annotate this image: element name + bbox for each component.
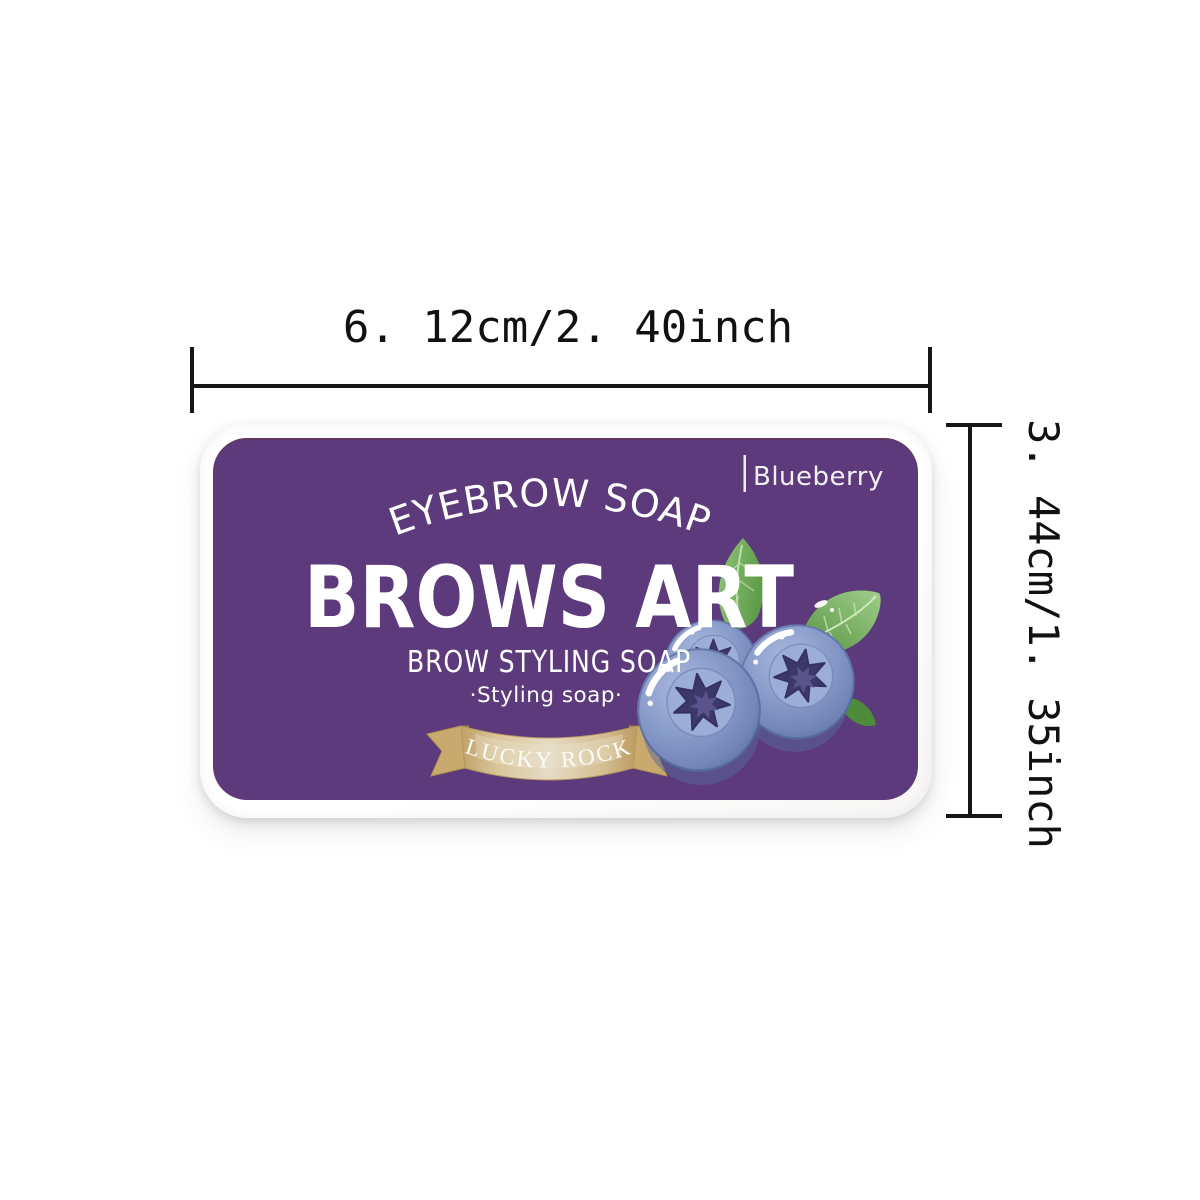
flavor-divider-bar	[744, 455, 747, 492]
height-dimension-tick-bottom	[946, 814, 1002, 818]
width-dimension-tick-left	[190, 347, 194, 413]
width-dimension-tick-right	[928, 347, 932, 413]
subtitle: BROW STYLING SOAP	[407, 645, 691, 680]
tagline: ·Styling soap·	[470, 683, 623, 708]
flavor-label: Blueberry	[753, 462, 884, 492]
width-dimension-label: 6. 12cm/2. 40inch	[318, 302, 818, 353]
soap-case: LUCKY ROCK	[200, 423, 932, 818]
height-dimension-tick-top	[946, 423, 1002, 427]
brand-title: BROWS ART	[304, 548, 794, 648]
label-artwork: LUCKY ROCK	[213, 438, 918, 800]
width-dimension-line	[192, 384, 930, 388]
height-dimension-line	[968, 425, 972, 817]
product-size-diagram: 6. 12cm/2. 40inch 3. 44cm/1. 35inch	[0, 0, 1200, 1200]
soap-label: LUCKY ROCK	[213, 438, 918, 800]
arc-title: EYEBROW SOAP	[383, 471, 717, 545]
lucky-rock-ribbon: LUCKY ROCK	[427, 725, 671, 780]
height-dimension-label: 3. 44cm/1. 35inch	[1019, 414, 1068, 854]
